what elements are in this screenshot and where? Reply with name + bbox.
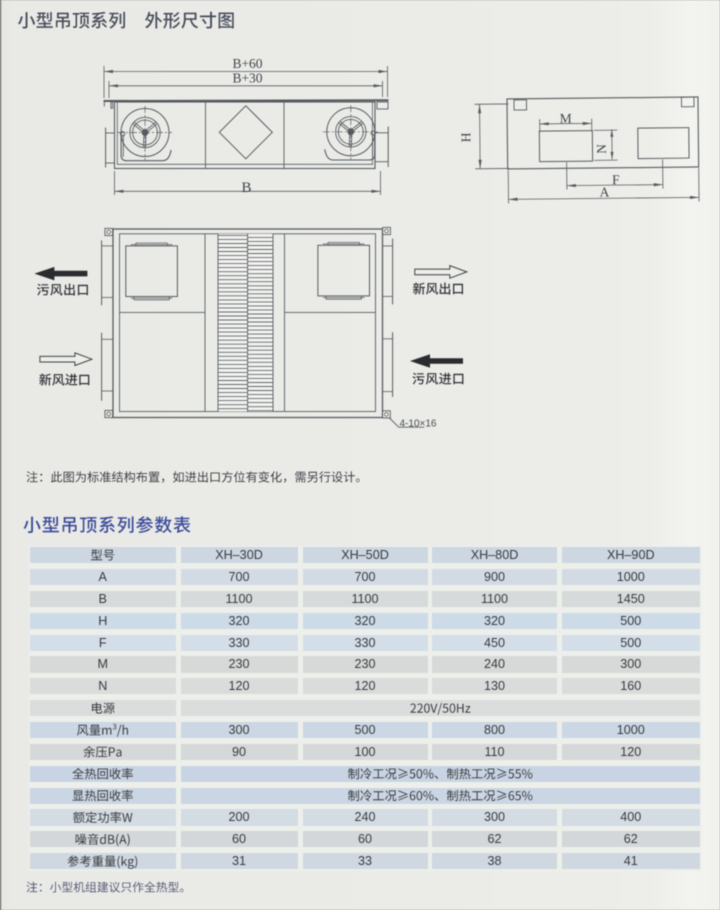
- svg-text:B+30: B+30: [232, 71, 262, 86]
- svg-text:H: H: [458, 132, 473, 142]
- svg-text:A: A: [599, 185, 609, 200]
- svg-text:B+60: B+60: [232, 56, 262, 71]
- svg-text:N: N: [594, 144, 609, 154]
- svg-text:F: F: [612, 172, 620, 187]
- svg-text:4-10×16: 4-10×16: [400, 419, 437, 430]
- svg-text:M: M: [560, 111, 572, 126]
- svg-text:B: B: [241, 180, 251, 196]
